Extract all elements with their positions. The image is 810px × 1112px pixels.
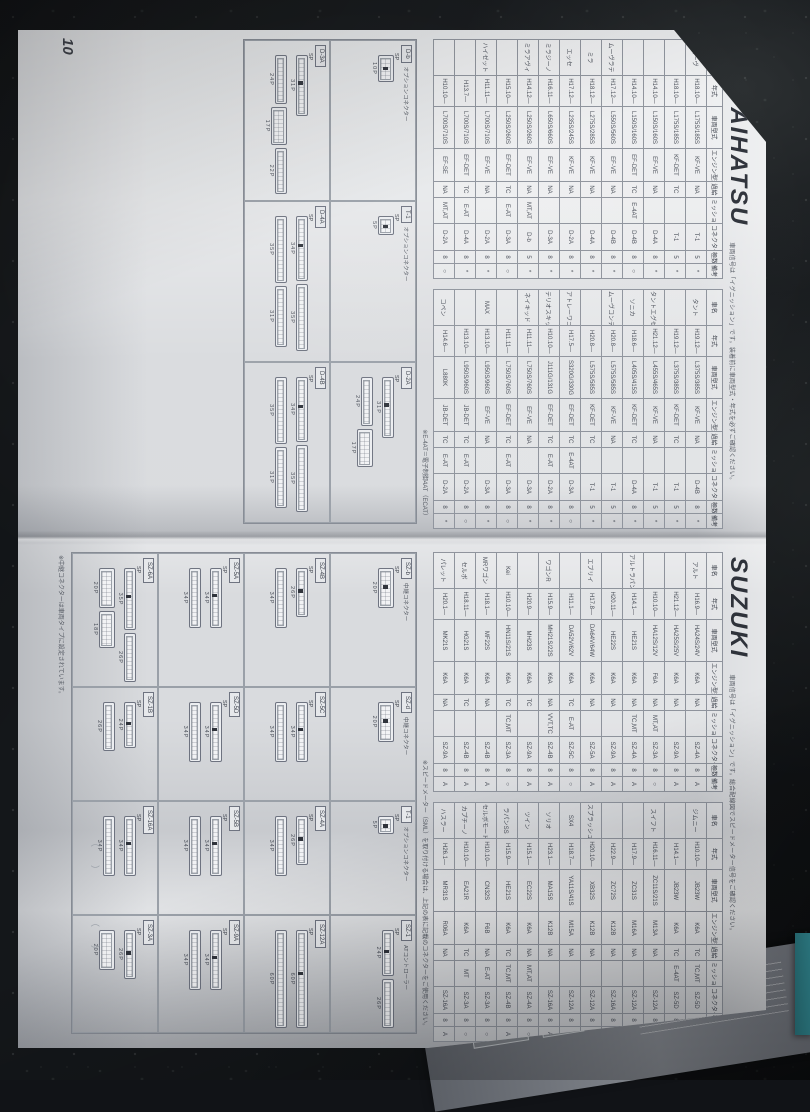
pin-grid — [278, 219, 285, 281]
column-header: 過給 — [707, 945, 723, 961]
table-cell: NA — [581, 695, 602, 711]
connector-type-label: オプションコネクター — [403, 67, 411, 122]
connector-segment: 35P — [289, 445, 308, 512]
table-cell: H10.10— — [644, 589, 665, 620]
table-cell — [602, 553, 623, 589]
table-cell — [602, 198, 623, 224]
table-row: H21.12—HA25S/25VK6ANASZ-9A8A — [665, 553, 686, 792]
manual-page: DAIHATSU 車両信号は「イグニッション」です。装着前に車両型式・年式を必ず… — [18, 30, 766, 1048]
daihatsu-table-left: 車名年式車両型式エンジン型式過給ミッションコネクター極数備考ムーヴH18.10—… — [433, 39, 723, 279]
pin-grid — [278, 571, 285, 626]
connector-id-label: D-4A — [315, 206, 326, 228]
table-row: H20.8—L575S/585SKF-DETTCT-15* — [581, 290, 602, 529]
table-cell: TC,MT — [497, 711, 518, 737]
table-cell: L575S/585S — [602, 357, 623, 399]
table-cell: 8 — [518, 764, 539, 777]
table-cell: 8 — [434, 501, 455, 514]
table-cell — [581, 448, 602, 474]
table-cell: K6A — [686, 662, 707, 695]
table-cell: H18.6— — [623, 326, 644, 357]
pin-grid — [278, 819, 285, 874]
table-cell: ムーヴラテ — [602, 40, 623, 76]
pin-count-label: 26P — [375, 997, 381, 1010]
pin-count-label: 34P — [268, 592, 274, 605]
sp-label: SP — [393, 814, 399, 821]
table-cell: H17.8— — [581, 589, 602, 620]
table-cell: EF-DET — [497, 149, 518, 182]
table-cell: TC — [455, 432, 476, 448]
connector-segment: SP31P — [289, 55, 308, 116]
table-cell: ツイン — [518, 803, 539, 839]
pin-grid — [127, 571, 134, 628]
table-cell — [665, 803, 686, 839]
connector-segment: 26P — [375, 979, 394, 1028]
pin-count-label: 26P — [117, 651, 123, 664]
table-cell: SZ-4A — [686, 737, 707, 764]
connector-panel-T-1: T-1オプションコネクターSP5P — [330, 201, 416, 362]
table-cell: H10.10— — [539, 326, 560, 357]
pin-count-label: 35P — [117, 593, 123, 606]
table-cell: ミラジーノ — [539, 40, 560, 76]
table-row: ラパンSSH15.9—HE21SK6ATCTC,MTSZ-4B8A — [497, 803, 518, 1042]
column-header: 年式 — [707, 589, 723, 620]
table-cell: A — [623, 777, 644, 792]
table-cell: D-3A — [476, 474, 497, 501]
table-cell: NA — [644, 432, 665, 448]
table-cell — [644, 553, 665, 589]
table-cell: H19.12— — [665, 326, 686, 357]
table-cell: M15A — [560, 912, 581, 945]
pin-count-label: 24P — [375, 947, 381, 960]
table-row: H14.10—L150S/160SEF-VENAD-4A8* — [644, 40, 665, 279]
connector-segment: 34P — [182, 568, 201, 628]
pin-grid — [299, 287, 306, 349]
table-cell: L950S/960S — [476, 357, 497, 399]
table-cell: VVT,TC — [539, 711, 560, 737]
pin-grid — [274, 110, 285, 143]
table-cell: E-AT — [434, 448, 455, 474]
connector-segment: 34P — [182, 930, 201, 990]
table-cell: 5 — [665, 251, 686, 264]
table-cell: JB23W — [686, 870, 707, 912]
table-cell: L700S/710S — [476, 107, 497, 149]
connector-drawing: SP24P26P — [96, 692, 140, 796]
sp-label: SP — [393, 700, 399, 707]
connector-segment: 35P — [268, 216, 287, 283]
table-cell: 5 — [602, 501, 623, 514]
table-cell: KF-DET — [665, 399, 686, 432]
connector-type-label: 中継コネクター — [403, 583, 411, 621]
connector-panel-SZ-5C: SZ-5CSP34P34P — [244, 687, 330, 801]
pin-count-label: 34P — [289, 242, 295, 255]
table-cell: 8 — [644, 764, 665, 777]
connector-segment: 24P — [268, 55, 287, 104]
table-cell: JB-DET — [455, 399, 476, 432]
sp-pin-marker — [213, 956, 218, 960]
connector-id-label: D-2A — [401, 367, 412, 389]
connector-segment: SP26P — [289, 568, 308, 617]
table-cell: * — [665, 264, 686, 279]
pin-grid — [278, 705, 285, 760]
table-cell: SZ-9A — [518, 737, 539, 764]
table-cell: K6A — [581, 662, 602, 695]
table-cell: TC — [518, 695, 539, 711]
table-cell: MA15S — [539, 870, 560, 912]
connector-segment: 34P — [182, 702, 201, 762]
table-cell: E-AT — [455, 198, 476, 224]
table-cell: NA — [602, 432, 623, 448]
connector-segment: SP34P — [203, 702, 222, 762]
connector-segment: 34P — [268, 816, 287, 876]
table-cell: KF-VE — [686, 149, 707, 182]
pin-grid — [299, 219, 306, 279]
column-header: 備考 — [707, 777, 723, 792]
connector-segment: 35P — [289, 284, 308, 351]
table-cell: HA12S/12V — [644, 620, 665, 662]
table-cell: HA25S/25V — [665, 620, 686, 662]
table-cell — [497, 40, 518, 76]
table-cell: EF-VE — [602, 149, 623, 182]
pin-grid — [385, 933, 392, 974]
table-cell: エッセ — [560, 40, 581, 76]
table-cell — [602, 711, 623, 737]
table-cell: K6A — [539, 662, 560, 695]
connector-segment: 26P — [96, 702, 115, 751]
pin-grid — [299, 58, 306, 114]
daihatsu-connector-diagrams: D-bオプションコネクターSP10PT-1オプションコネクターSP5PD-2AS… — [243, 39, 417, 524]
table-cell: L575S/585S — [581, 357, 602, 399]
column-header: 過給 — [707, 695, 723, 711]
table-cell: NA — [665, 695, 686, 711]
pin-count-label: 35P — [289, 311, 295, 324]
suzuki-note: 車両信号は「イグニッション」です。総合配線図でスピードメーター信号をご確認くださ… — [726, 674, 737, 934]
connector-panel-D-b: D-bオプションコネクターSP10P — [330, 40, 416, 201]
table-cell: E-4AT — [665, 961, 686, 987]
table-cell — [581, 198, 602, 224]
table-cell: K6A — [665, 912, 686, 945]
connector-id-label: SZ-5B — [229, 806, 240, 831]
suzuki-bottom-note: ※中継コネクターは車両タイプに設定されています。 — [57, 555, 66, 1043]
table-cell: A — [602, 777, 623, 792]
table-cell: H18.11— — [455, 589, 476, 620]
pin-grid — [278, 450, 285, 506]
table-cell: KF-VE — [602, 399, 623, 432]
table-cell: EC22S — [518, 870, 539, 912]
table-cell: NA — [560, 945, 581, 961]
table-cell: H15.9— — [539, 589, 560, 620]
sp-pin-marker — [383, 585, 388, 589]
table-cell: TC — [623, 432, 644, 448]
table-cell: E-AT — [476, 961, 497, 987]
connector-panel-SZ-d: SZ-d中継コネクターSP20P — [330, 687, 416, 801]
connector-id-label: SZ-d — [401, 692, 412, 713]
pin-count-label: 20P — [371, 582, 377, 595]
table-cell: SZ-16A — [434, 987, 455, 1014]
table-cell: L700S/710S — [455, 107, 476, 149]
pin-count-label: 35P — [268, 243, 274, 256]
sp-label: SP — [393, 928, 399, 935]
column-header: 車両型式 — [707, 620, 723, 662]
table-cell: DA64V/64W — [581, 620, 602, 662]
sp-pin-marker — [385, 403, 390, 407]
table-row: MAXH13.10—L950S/960SEF-VENAD-3A8* — [476, 290, 497, 529]
table-cell: NA — [476, 432, 497, 448]
table-cell: 8 — [455, 1014, 476, 1027]
table-cell: TC — [581, 432, 602, 448]
table-row: H14.10—L150S/160SEF-DETTCE-4ATD-4B8○ — [623, 40, 644, 279]
table-cell: L275S/285S — [581, 107, 602, 149]
daihatsu-page: DAIHATSU 車両信号は「イグニッション」です。装着前に車両型式・年式を必ず… — [18, 30, 766, 533]
column-header: コネクター — [707, 737, 723, 764]
pin-grid — [213, 933, 220, 988]
table-cell: ○ — [497, 514, 518, 529]
pin-count-label: 31P — [375, 401, 381, 414]
pin-count-label: 20P — [92, 582, 98, 595]
table-cell: D-3A — [497, 474, 518, 501]
sp-pin-marker — [213, 728, 218, 732]
table-row: アルトラパンH14.1—HE21SK6ANATC,MTSZ-4A8A — [623, 553, 644, 792]
connector-panel-D-4A: D-4ASP34P35P35P31P — [244, 201, 330, 362]
table-row: アルトH16.9—HA24S/24VK6ANASZ-4A8A — [686, 553, 707, 792]
table-row: ハスラーH26.1—MR31SR06ANASZ-16A8A — [434, 803, 455, 1042]
table-cell: H15.10— — [497, 76, 518, 107]
table-cell: NA — [686, 182, 707, 198]
table-cell: 8 — [560, 764, 581, 777]
table-cell: EF-VE — [539, 149, 560, 182]
table-cell: H15.1— — [518, 839, 539, 870]
table-cell: NA — [476, 945, 497, 961]
table-cell: セルボモード — [476, 803, 497, 839]
table-cell: 8 — [497, 764, 518, 777]
table-row: ハイゼットH11.11—L700S/710SEF-VENAD-2A8* — [476, 40, 497, 279]
suzuki-title-row: SUZUKI 車両信号は「イグニッション」です。総合配線図でスピードメーター信号… — [726, 543, 756, 1043]
connector-panel-D-3A: D-3ASP31P24P17P22P — [244, 40, 330, 201]
pin-grid — [127, 636, 134, 680]
table-cell: * — [644, 264, 665, 279]
table-cell: ZC11S/21S — [644, 870, 665, 912]
pin-grid — [278, 289, 285, 345]
table-cell: * — [518, 514, 539, 529]
table-cell: アトレーワゴン — [560, 290, 581, 326]
table-cell: E-AT — [560, 711, 581, 737]
suzuki-table-right: 車名年式車両型式エンジン型式過給ミッションコネクター極数備考ジムニーH10.10… — [433, 802, 723, 1042]
table-cell: 8 — [602, 251, 623, 264]
column-header: 年式 — [707, 326, 723, 357]
connector-id-label: D-4B — [315, 367, 326, 389]
table-cell: 5 — [686, 251, 707, 264]
table-cell: H21.12— — [665, 589, 686, 620]
table-cell: EF-DET — [497, 399, 518, 432]
table-cell: テリオスキッド — [539, 290, 560, 326]
table-cell: ワゴンR — [539, 553, 560, 589]
table-cell: 8 — [434, 1014, 455, 1027]
table-cell: NA — [581, 182, 602, 198]
connector-segment: SP34P — [289, 377, 308, 442]
table-cell: K6A — [623, 662, 644, 695]
table-cell: MT,AT — [644, 711, 665, 737]
table-cell: * — [623, 514, 644, 529]
table-cell: ミラアヴィ — [518, 40, 539, 76]
connector-id-label: SZ-4A — [315, 806, 326, 831]
table-cell: H16.11— — [644, 839, 665, 870]
table-cell: TC,MT — [623, 711, 644, 737]
sp-label: SP — [135, 566, 141, 573]
table-cell: H11.11— — [518, 326, 539, 357]
connector-segment: SP10P — [371, 55, 394, 82]
suzuki-footnote: ※スピードメーター（SML）を取り付ける場合は、上記の表に記載のコネクターをご使… — [421, 543, 430, 1029]
table-cell: * — [581, 264, 602, 279]
connector-id-label: SZ-5D — [229, 692, 240, 717]
table-cell — [539, 961, 560, 987]
table-cell: * — [686, 514, 707, 529]
suzuki-tables: 車名年式車両型式エンジン型式過給ミッションコネクター極数備考アルトH16.9—H… — [433, 543, 723, 1043]
table-cell: TC — [560, 695, 581, 711]
pin-count-label: 34P — [203, 592, 209, 605]
table-cell: NA — [518, 432, 539, 448]
table-cell: L950S/960S — [455, 357, 476, 399]
table-cell: スイフト — [644, 803, 665, 839]
pin-grid — [213, 819, 220, 874]
photo-of-manual: { "page": { "number": "10", "sections": … — [0, 0, 810, 1080]
table-cell: 8 — [581, 251, 602, 264]
table-cell: MT,AT — [434, 198, 455, 224]
pin-count-label: 35P — [268, 404, 274, 417]
pin-grid — [127, 819, 134, 874]
pin-grid — [381, 571, 392, 606]
table-cell: K12B — [539, 912, 560, 945]
connector-segment: 31P — [268, 447, 287, 508]
table-cell — [644, 40, 665, 76]
table-cell: ○ — [497, 777, 518, 792]
column-header: 極数 — [707, 251, 723, 264]
table-cell: NA — [434, 945, 455, 961]
table-cell: D-2A — [539, 474, 560, 501]
table-cell: K6A — [434, 662, 455, 695]
pin-count-label: 34P — [268, 840, 274, 853]
table-cell: TC — [497, 945, 518, 961]
table-cell: H17.12— — [602, 76, 623, 107]
table-cell: SZ-3A — [497, 737, 518, 764]
table-cell: H10.10— — [455, 839, 476, 870]
sp-label: SP — [393, 53, 399, 60]
table-cell: * — [476, 264, 497, 279]
table-cell: H13.10— — [455, 326, 476, 357]
table-row: H10.10—HA12S/12VF6ANAMT,ATSZ-3A8○ — [644, 553, 665, 792]
sp-label: SP — [135, 814, 141, 821]
table-cell — [623, 961, 644, 987]
column-header: 車名 — [707, 803, 723, 839]
column-header: 極数 — [707, 764, 723, 777]
pin-grid — [192, 705, 199, 760]
table-cell: H20.9— — [518, 589, 539, 620]
table-cell: 8 — [686, 501, 707, 514]
table-cell: EF-VE — [518, 149, 539, 182]
connector-panel-D-4B: D-4BSP34P35P35P31P — [244, 362, 330, 523]
table-cell: 8 — [476, 501, 497, 514]
table-cell: T-1 — [686, 224, 707, 251]
table-cell: D-4A — [581, 224, 602, 251]
table-cell: SZ-4B — [455, 737, 476, 764]
pin-grid — [192, 933, 199, 988]
connector-segment: 60P — [268, 930, 287, 1028]
table-cell: ○ — [560, 777, 581, 792]
table-cell: SZ-4A — [623, 737, 644, 764]
table-cell: T-1 — [581, 474, 602, 501]
connector-segment: SP60P — [289, 930, 308, 1028]
pin-grid — [381, 219, 392, 233]
connector-drawing: SP34P34P — [182, 806, 226, 910]
table-cell: TC — [434, 432, 455, 448]
table-cell: TC — [665, 182, 686, 198]
connector-drawing: SP34P34P — [268, 692, 312, 796]
table-cell: SZ-12A — [644, 987, 665, 1014]
table-cell: カプチーノ — [455, 803, 476, 839]
table-cell: NA — [602, 182, 623, 198]
table-cell: H10.10— — [476, 839, 497, 870]
table-cell: 8 — [665, 764, 686, 777]
table-cell: D-4A — [644, 224, 665, 251]
table-cell — [623, 40, 644, 76]
pin-count-label: 24P — [354, 395, 360, 408]
connector-segment: 26P — [117, 633, 136, 682]
table-cell: H22.9— — [602, 839, 623, 870]
connector-segment: 18P — [92, 611, 115, 648]
table-cell: SZ-3A — [476, 987, 497, 1014]
column-header: エンジン型式 — [707, 912, 723, 945]
table-cell: T-1 — [644, 474, 665, 501]
table-cell: D-2A — [476, 224, 497, 251]
table-cell: * — [476, 514, 497, 529]
table-cell: ハスラー — [434, 803, 455, 839]
table-cell: NA — [518, 945, 539, 961]
table-cell: EF-VE — [518, 399, 539, 432]
table-cell: JB23W — [665, 870, 686, 912]
pin-count-label: 60P — [289, 973, 295, 986]
page-fold-crease — [18, 531, 766, 543]
connector-drawing: SP5P — [371, 806, 398, 910]
table-row: H10.10—L700S/710SEF-SENAMT,ATD-2A8○ — [434, 40, 455, 279]
pin-count-label: 34P — [182, 592, 188, 605]
connector-segment: 17P — [264, 107, 287, 145]
connector-segment: 31P — [268, 286, 287, 347]
table-cell: L750S/760S — [518, 357, 539, 399]
table-cell: H19.12— — [686, 326, 707, 357]
table-cell: EF-DET — [560, 399, 581, 432]
column-header: 過給 — [707, 432, 723, 448]
table-cell: アルト — [686, 553, 707, 589]
table-cell: 8 — [518, 1014, 539, 1027]
table-cell: HE21S — [497, 870, 518, 912]
table-cell: コペン — [434, 290, 455, 326]
table-cell: ハイゼット — [476, 40, 497, 76]
connector-type-label: オプションコネクター — [403, 827, 411, 882]
sp-pin-marker — [383, 67, 388, 71]
table-cell: L235S/245S — [560, 107, 581, 149]
table-cell — [686, 711, 707, 737]
table-row: ジムニーH10.10—JB23WK6ATCTC,MTSZ-5D8A — [686, 803, 707, 1042]
pin-grid — [299, 933, 306, 1026]
connector-id-label: SZ-5A — [229, 558, 240, 583]
connector-segment: SP5P — [371, 216, 394, 235]
table-cell: HE21S — [623, 620, 644, 662]
table-cell: HA24S/24V — [686, 620, 707, 662]
table-cell: 8 — [455, 251, 476, 264]
table-cell: TC — [539, 432, 560, 448]
sp-pin-marker — [299, 405, 304, 409]
table-cell: D-4A — [455, 224, 476, 251]
sp-pin-marker — [299, 837, 304, 841]
sp-label: SP — [393, 375, 399, 382]
